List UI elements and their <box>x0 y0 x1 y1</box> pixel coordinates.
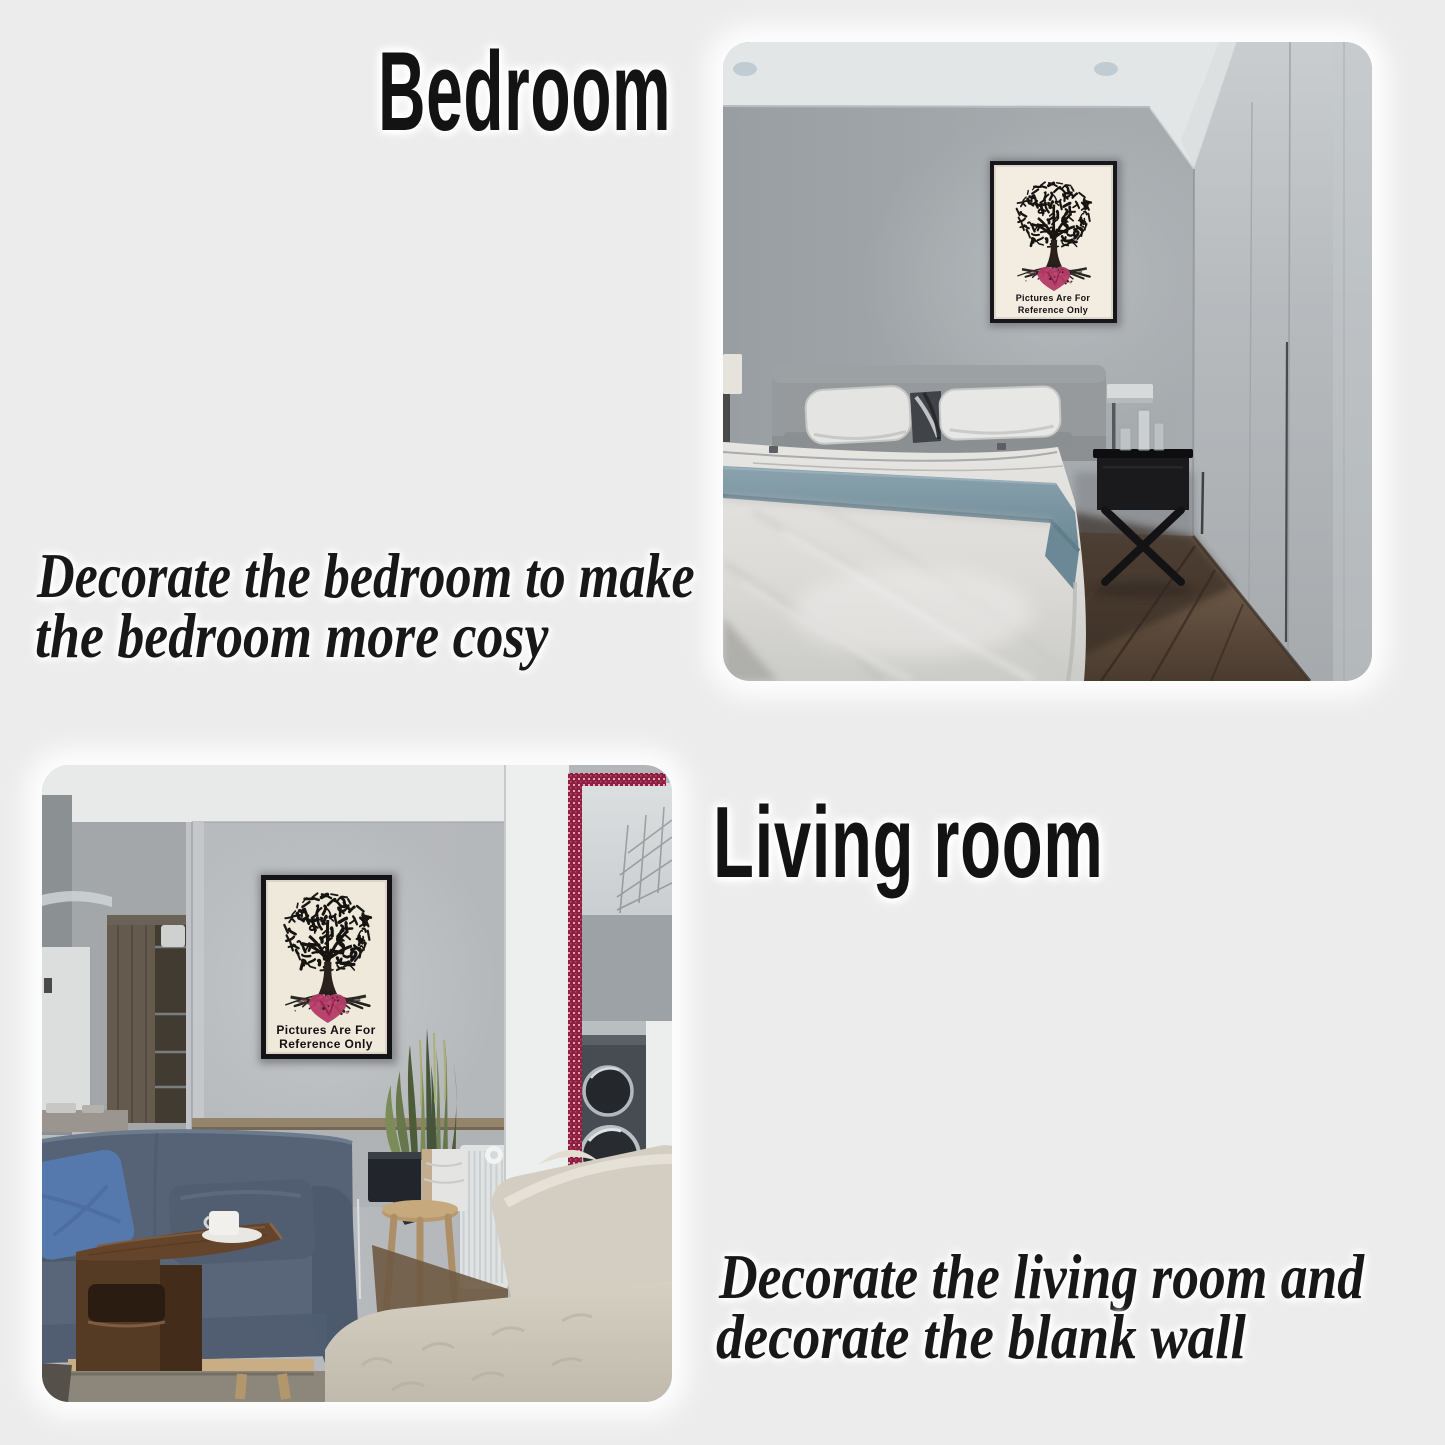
svg-text:Pictures Are For: Pictures Are For <box>1016 293 1091 303</box>
svg-text:Reference Only: Reference Only <box>279 1037 373 1051</box>
svg-text:Reference Only: Reference Only <box>1018 305 1088 315</box>
svg-text:Pictures Are For: Pictures Are For <box>276 1023 375 1037</box>
